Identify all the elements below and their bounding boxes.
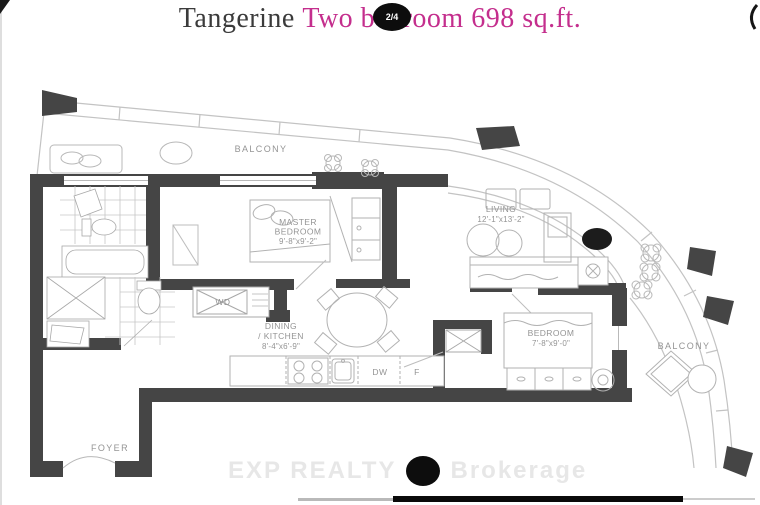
master-dims: 9'-8"x9'-2" bbox=[279, 237, 317, 246]
dining-dims: 8'-4"x6'-9" bbox=[262, 342, 300, 351]
foyer-label: FOYER bbox=[91, 443, 129, 453]
entry-door-swing bbox=[63, 457, 115, 468]
bedroom2-dims: 7'-8"x9'-0" bbox=[532, 339, 570, 348]
armchair bbox=[520, 189, 550, 209]
bathtub-icon bbox=[62, 246, 148, 278]
coffee-table bbox=[496, 230, 522, 256]
living-label-1: LIVING bbox=[486, 204, 516, 214]
plant-icon bbox=[632, 281, 652, 299]
bathroom-main bbox=[60, 186, 148, 278]
entry-closet bbox=[446, 330, 481, 352]
living-dims: 12'-1"x13'-2" bbox=[477, 215, 524, 224]
floorplan-page: Tangerine Two bedroom 698 sq.ft. 2/4 bbox=[0, 0, 760, 505]
dining-set bbox=[315, 287, 400, 355]
ac-unit bbox=[578, 257, 608, 285]
shower-icon bbox=[47, 277, 105, 319]
unit-title: Two bedroom 698 sq.ft. bbox=[302, 3, 581, 34]
balcony-table bbox=[160, 142, 192, 164]
dresser bbox=[507, 368, 591, 390]
dishwasher-label: DW bbox=[372, 367, 387, 377]
toilet-icon bbox=[137, 281, 161, 314]
brokerage-watermark: EXP REALTY Brokerage bbox=[228, 456, 587, 486]
coffee-table bbox=[467, 224, 499, 256]
floor-plan: WD MASTER BEDROOM 9'-8"x9'-2" bbox=[0, 0, 760, 505]
balcony-right-label: BALCONY bbox=[658, 341, 711, 351]
right-balcony-furniture bbox=[646, 351, 716, 396]
bathroom-sink bbox=[74, 189, 102, 217]
master-bedroom-label: MASTER BEDROOM 9'-8"x9'-2" bbox=[275, 217, 322, 246]
plant-icon bbox=[641, 244, 661, 262]
photo-count-badge: 2/4 bbox=[373, 3, 411, 31]
bottom-bar-gray-right bbox=[683, 498, 755, 500]
balcony-lounger bbox=[646, 351, 696, 396]
master-label-2: BEDROOM bbox=[275, 227, 322, 237]
watermark-text-left: EXP REALTY bbox=[228, 457, 396, 485]
tv-screen bbox=[582, 228, 612, 250]
balcony-top-label: BALCONY bbox=[235, 144, 288, 154]
watermark-logo-dot bbox=[406, 456, 440, 486]
bathroom-ensuite bbox=[47, 277, 175, 347]
living-label: LIVING 12'-1"x13'-2" bbox=[477, 204, 524, 224]
bottom-bar-black bbox=[393, 496, 683, 502]
bedroom2-label: BEDROOM bbox=[528, 328, 575, 338]
dining-kitchen-label: DINING / KITCHEN 8'-4"x6'-9" bbox=[258, 321, 304, 351]
door-swing bbox=[296, 260, 326, 289]
vanity-sink bbox=[47, 321, 89, 347]
washer-dryer-label: WD bbox=[215, 297, 230, 307]
kitchen-counter bbox=[230, 352, 444, 386]
watermark-text-right: Brokerage bbox=[450, 457, 587, 485]
balcony-chair bbox=[688, 365, 716, 393]
bottom-bar-gray-left bbox=[298, 498, 393, 501]
bedroom-2-furniture bbox=[504, 313, 614, 391]
laundry-closet bbox=[193, 287, 269, 317]
photo-count-label: 2/4 bbox=[386, 12, 399, 22]
hall-closet bbox=[173, 225, 198, 265]
door-swing bbox=[124, 320, 152, 346]
building-name: Tangerine bbox=[179, 3, 295, 34]
master-label-1: MASTER bbox=[279, 217, 317, 227]
toilet-icon bbox=[82, 219, 116, 236]
dining-label-2: / KITCHEN bbox=[258, 331, 304, 341]
fridge-label: F bbox=[414, 367, 420, 377]
plant-icon bbox=[325, 155, 342, 172]
top-balcony-furniture bbox=[50, 142, 192, 173]
side-table bbox=[592, 369, 614, 391]
dining-label-1: DINING bbox=[265, 321, 297, 331]
master-closet bbox=[352, 198, 380, 260]
